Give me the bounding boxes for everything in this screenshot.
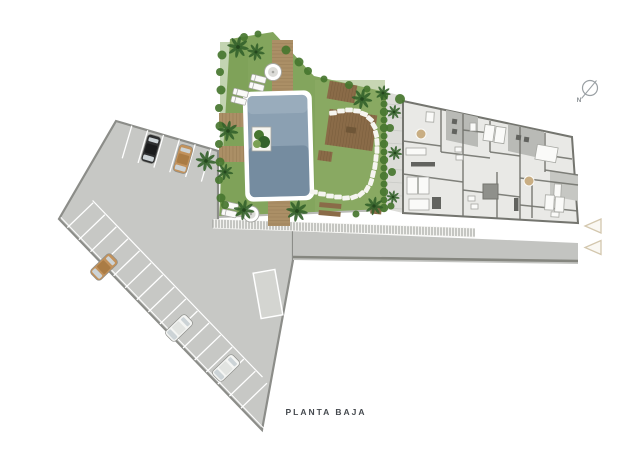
wood-bench-mid	[317, 150, 332, 162]
building	[403, 101, 578, 223]
site-plan	[0, 0, 640, 457]
plan-title: PLANTA BAJA	[281, 407, 371, 417]
elevator-core	[483, 184, 498, 199]
parasol-icon	[265, 64, 282, 81]
north-label: N	[572, 97, 586, 104]
planter-box	[252, 127, 271, 151]
compass-north-icon	[582, 81, 598, 99]
floor-plan-page: PLANTA BAJA N	[0, 0, 640, 457]
entrance-arrow-icon	[585, 219, 601, 233]
entrance-arrow-icon	[585, 241, 601, 255]
